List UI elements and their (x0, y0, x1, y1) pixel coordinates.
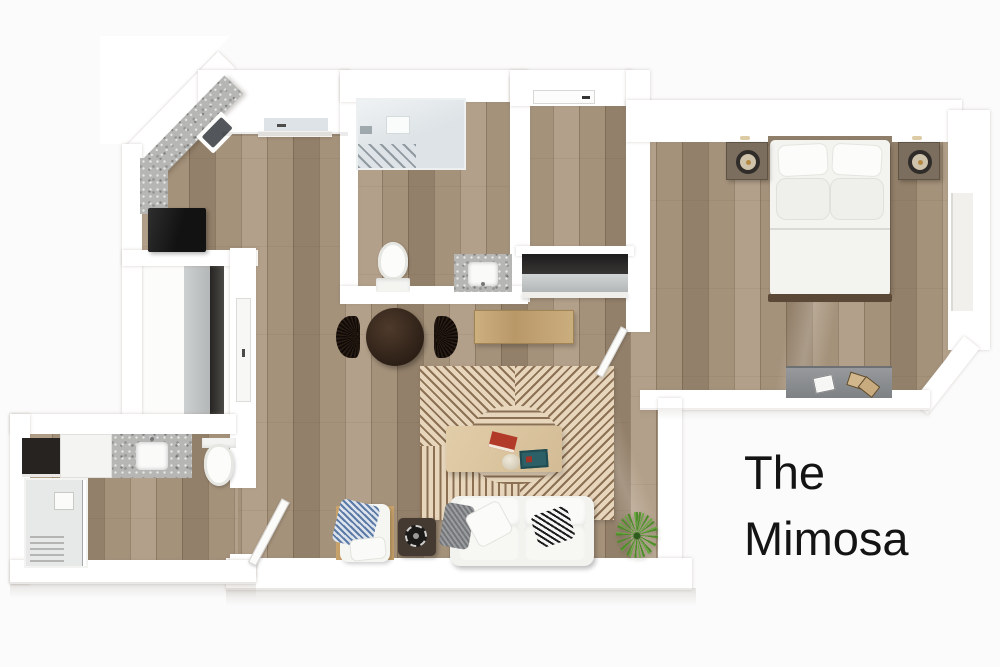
left-closet-dark-gap (210, 256, 224, 428)
toilet-bowl (378, 242, 408, 280)
bathroom1-toilet (376, 242, 410, 292)
armchair (336, 502, 394, 564)
tray-dot (526, 456, 532, 462)
lamp-icon (736, 150, 760, 174)
plan-shadow-bottom-left (10, 582, 256, 598)
coffee-table (446, 426, 562, 472)
plan-title-line2: Mimosa (744, 506, 909, 572)
floorplan: The Mimosa (0, 0, 1000, 667)
bedroom-window (951, 193, 973, 311)
potted-plant (616, 512, 658, 558)
bathroom2-counter-white (60, 434, 112, 478)
bed (768, 136, 892, 302)
bathroom1-vanity (454, 254, 512, 292)
dining-table (366, 308, 424, 366)
bathroom2-toilet-bowl (204, 444, 234, 486)
bathroom2-shower (24, 478, 88, 568)
toilet-tank (376, 278, 410, 292)
vase (502, 454, 520, 470)
shower-head-icon (360, 126, 372, 134)
plan-shadow-bedroom (640, 408, 930, 420)
entry-door (533, 90, 595, 104)
bedroom-sconce (740, 136, 750, 140)
bed-foot-rail (768, 294, 892, 302)
entry-closet-sliding-door (522, 274, 628, 292)
left-closet-slide-panel (184, 256, 210, 428)
lamp-bulb (746, 160, 751, 165)
shower-door-glass-stripes (358, 144, 416, 168)
nightstand-right (898, 142, 940, 180)
bathroom1-shower (356, 98, 466, 170)
sofa (450, 496, 594, 566)
bed-pillow (831, 143, 883, 178)
bathroom2-shower-head (54, 492, 74, 510)
dining-chair-left (336, 316, 360, 358)
bedroom-sconce (912, 136, 922, 140)
kitchen-counter-left (140, 158, 168, 214)
red-book (488, 431, 517, 453)
entry-closet-interior (522, 254, 628, 274)
bathroom2-toilet (202, 438, 236, 490)
left-closet-door-handle (242, 349, 245, 357)
entry-closet-base (522, 292, 628, 298)
teal-tray (519, 449, 548, 469)
lamp-icon (908, 150, 932, 174)
kitchen-window-latch (277, 124, 286, 127)
side-table (398, 518, 436, 556)
lamp-bulb (918, 160, 923, 165)
bathroom2-closet-dark (22, 438, 60, 477)
bed-pillow (776, 178, 830, 220)
kitchen-counter-shadow (222, 132, 348, 136)
open-book (813, 374, 836, 394)
left-closet-door (236, 298, 251, 402)
plan-title-line1: The (744, 440, 909, 506)
bed-duvet-fold (770, 228, 890, 230)
entry-door-handle (582, 96, 590, 99)
speaker-ring (405, 525, 427, 547)
bathroom2-vanity (112, 434, 192, 478)
speaker-center (413, 533, 419, 539)
nightstand-left (726, 142, 768, 180)
bedroom-desk (786, 366, 892, 398)
plan-shadow-bottom (226, 588, 696, 606)
armchair-pillow (349, 536, 387, 562)
bed-pillow (777, 143, 829, 178)
kitchen-left-wall (122, 144, 142, 434)
shower-shelf (386, 116, 410, 134)
vanity-faucet (481, 282, 485, 286)
bathroom2-faucet (150, 437, 154, 441)
kitchen-fridge (148, 208, 206, 252)
plan-title: The Mimosa (744, 440, 909, 572)
living-right-wall (658, 398, 682, 576)
bed-pillow (830, 178, 884, 220)
bathroom2-shower-drain-lines (30, 536, 64, 562)
bathroom2-sink (136, 442, 168, 470)
console-table (474, 310, 574, 344)
bathroom2-top-wall (10, 414, 236, 434)
